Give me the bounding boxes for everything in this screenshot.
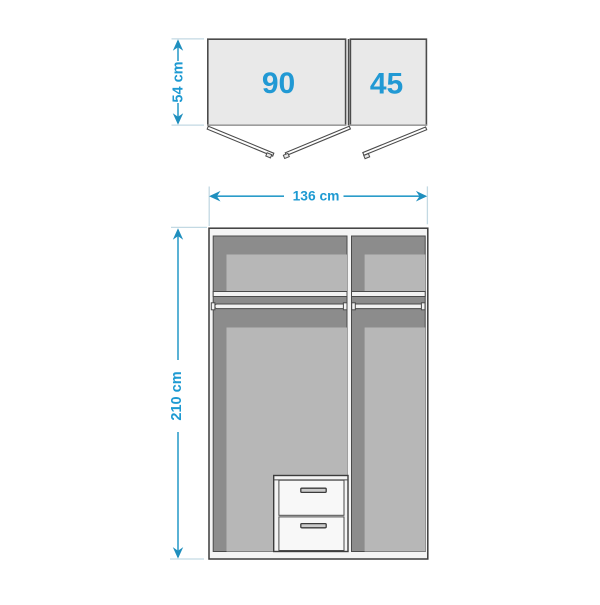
svg-text:45: 45 xyxy=(370,68,403,101)
svg-text:90: 90 xyxy=(262,67,295,100)
svg-text:54 cm: 54 cm xyxy=(171,61,187,102)
svg-text:136 cm: 136 cm xyxy=(293,189,340,204)
svg-text:210 cm: 210 cm xyxy=(169,371,185,420)
